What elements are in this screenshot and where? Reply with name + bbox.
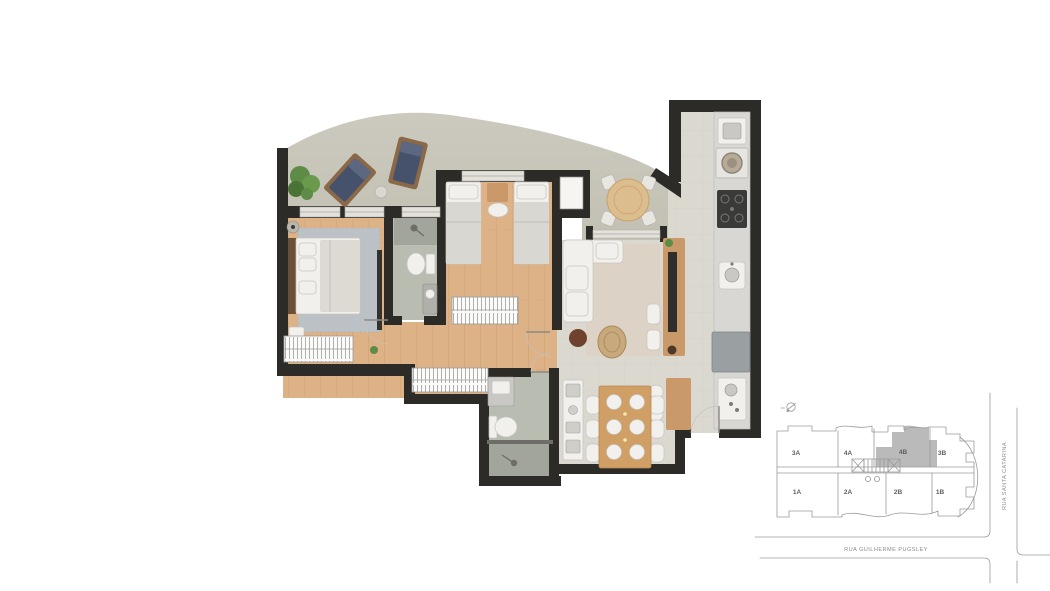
shaft [560,177,583,209]
floor-plan-page: 3A 4A 4B 3B 1A 2A 2B 1B RUA GUILHERME PU… [0,0,1050,591]
floor-plan-canvas: 3A 4A 4B 3B 1A 2A 2B 1B RUA GUILHERME PU… [0,0,1050,591]
laundry-sink [718,118,746,144]
streets: RUA GUILHERME PUGSLEY RUA SANTA CATARINA [755,393,1050,583]
dining-table [599,386,651,468]
stool-2 [647,330,660,350]
street-label-guilherme-pugsley: RUA GUILHERME PUGSLEY [844,547,928,553]
cooktop-stove [717,190,747,228]
key-plan: 3A 4A 4B 3B 1A 2A 2B 1B RUA GUILHERME PU… [755,393,1050,583]
nightstand-2 [487,183,508,202]
bathroom2-shower-floor [487,444,553,478]
hall-closet [412,368,488,392]
refrigerator [712,332,750,372]
dining-area [563,380,664,468]
sink-vanity-1 [423,284,437,314]
stool-1 [647,304,660,324]
unit-label-1b: 1B [936,489,945,496]
tv-sideboard [663,238,685,356]
keyplan-building-outline [777,426,974,517]
stool-pouf [488,203,508,217]
shower-divider [487,440,553,444]
unit-label-2b: 2B [894,489,903,496]
tv-panel [377,250,382,330]
pouf-ottoman [569,329,587,347]
double-bed [288,238,360,314]
unit-label-4b: 4B [899,449,908,456]
single-bed-1 [446,182,481,264]
unit-label-1a: 1A [793,489,802,496]
plant-small [370,346,378,354]
north-arrow-icon [781,403,796,413]
rattan-chair [598,326,626,358]
single-bed-2 [514,182,549,264]
wardrobe-bedroom2 [452,297,518,324]
living-room [563,238,685,358]
prep-sink [718,378,746,420]
unit-label-3b: 3B [938,450,947,457]
toilet-2 [489,416,517,438]
side-table [375,186,387,198]
terrace-round-table [600,174,657,227]
apartment-plan [277,100,761,486]
washing-machine [716,148,748,178]
wardrobe-master [284,336,353,362]
toilet-1 [407,253,435,275]
sink-vanity-2 [488,377,514,406]
sideboard-cabinet [563,380,583,460]
unit-label-2a: 2A [844,489,853,496]
unit-label-4a: 4A [844,450,853,457]
kitchen-sink [719,262,745,289]
unit-label-3a: 3A [792,450,801,457]
street-label-santa-catarina: RUA SANTA CATARINA [1002,442,1008,510]
